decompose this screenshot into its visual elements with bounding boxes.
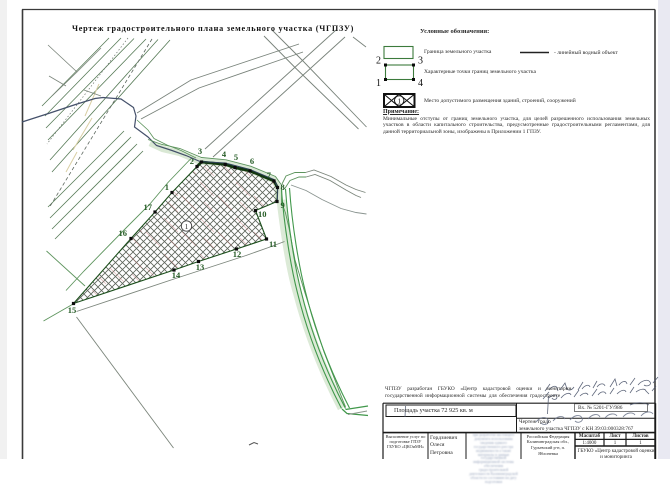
svg-text:2: 2	[376, 56, 381, 67]
svg-text:11: 11	[269, 239, 277, 249]
svg-text:14: 14	[172, 270, 181, 280]
svg-text:4: 4	[418, 78, 423, 89]
svg-text:8: 8	[281, 182, 285, 192]
svg-text:4: 4	[222, 149, 227, 159]
svg-text:13: 13	[196, 262, 205, 272]
svg-text:3: 3	[198, 146, 202, 156]
svg-text:10: 10	[258, 209, 267, 219]
svg-text:12: 12	[233, 249, 242, 259]
svg-text:9: 9	[281, 200, 285, 210]
svg-text:5: 5	[234, 152, 238, 162]
svg-text:2: 2	[190, 156, 194, 166]
svg-text:3: 3	[418, 56, 423, 67]
svg-text:15: 15	[68, 305, 77, 315]
svg-text:6: 6	[250, 156, 254, 166]
svg-text:1: 1	[185, 223, 189, 231]
svg-text:17: 17	[144, 202, 153, 212]
svg-text:16: 16	[119, 228, 128, 238]
svg-text:1: 1	[397, 97, 401, 106]
svg-text:1: 1	[376, 78, 381, 89]
svg-text:1: 1	[165, 182, 169, 192]
